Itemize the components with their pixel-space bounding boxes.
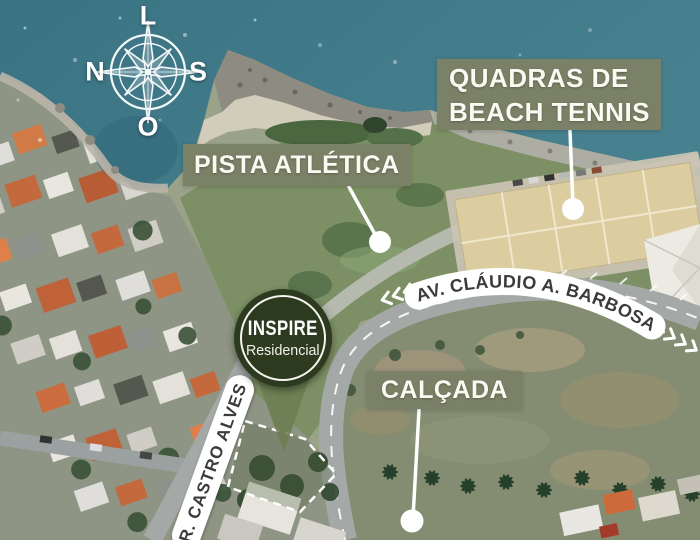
leader-line-athletic-track: [349, 187, 377, 238]
point-marker-beach-tennis: [562, 198, 584, 220]
point-marker-athletic-track: [369, 231, 391, 253]
label-sidewalk: CALÇADA: [367, 371, 522, 409]
marker-title: INSPIRE: [248, 317, 318, 341]
leader-line-beach-tennis: [570, 131, 573, 206]
svg-text:AV. CLÁUDIO A. BARBOSA: AV. CLÁUDIO A. BARBOSA: [413, 271, 659, 335]
street-ribbon-avenue: AV. CLÁUDIO A. BARBOSA: [381, 271, 700, 355]
marker-subtitle: Residencial: [246, 342, 320, 359]
compass-letter-bottom: O: [137, 112, 158, 143]
label-athletic-track: PISTA ATLÉTICA: [183, 144, 411, 186]
point-marker-sidewalk: [401, 510, 424, 533]
inspire-marker: INSPIRE Residencial: [234, 289, 332, 387]
label-beach-tennis: QUADRAS DE BEACH TENNIS: [437, 59, 661, 130]
label-beach-tennis-line1: QUADRAS DE: [449, 61, 661, 95]
compass-letter-left: N: [85, 57, 105, 88]
satellite-map: AV. CLÁUDIO A. BARBOSA: [0, 0, 700, 540]
compass-letter-top: L: [140, 1, 157, 32]
road-chevrons-right: [654, 323, 700, 355]
label-beach-tennis-line2: BEACH TENNIS: [449, 95, 661, 129]
avenue-road-name: AV. CLÁUDIO A. BARBOSA: [413, 271, 659, 335]
compass-rose-icon: [97, 21, 199, 123]
compass-letter-right: S: [189, 57, 207, 88]
leader-line-sidewalk: [413, 410, 419, 518]
